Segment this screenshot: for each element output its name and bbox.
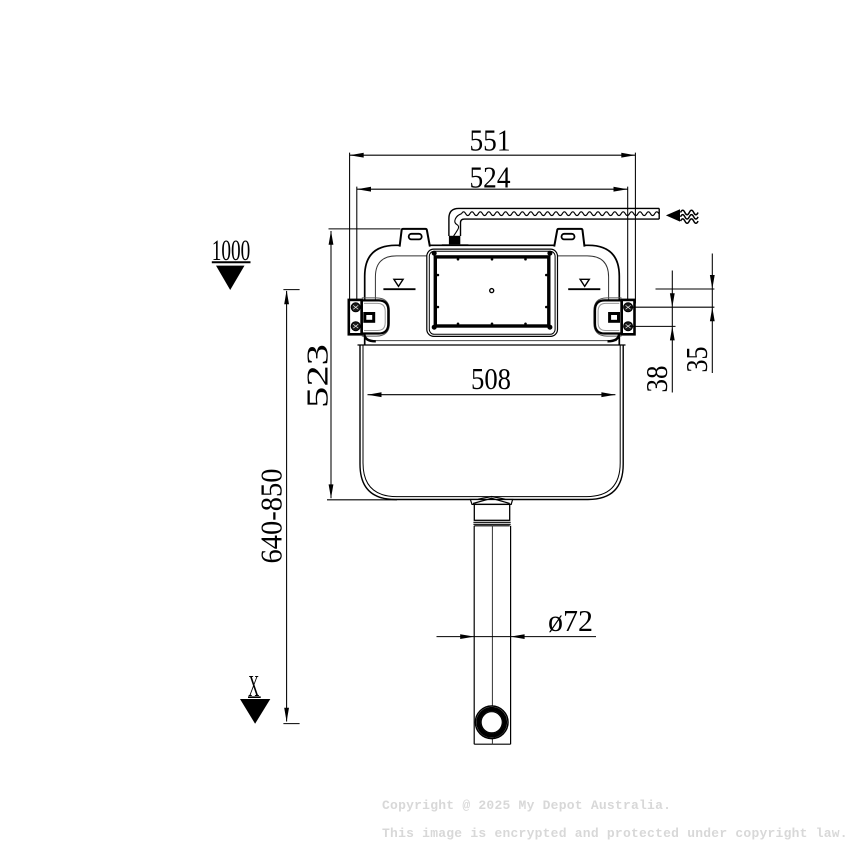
svg-text:38: 38 [639, 366, 674, 393]
svg-text:35: 35 [679, 347, 714, 373]
svg-text:524: 524 [470, 159, 511, 194]
svg-text:640-850: 640-850 [254, 469, 289, 564]
svg-text:508: 508 [471, 361, 511, 396]
svg-text:523: 523 [300, 344, 335, 408]
svg-text:ø72: ø72 [548, 603, 593, 638]
svg-text:551: 551 [470, 123, 511, 158]
